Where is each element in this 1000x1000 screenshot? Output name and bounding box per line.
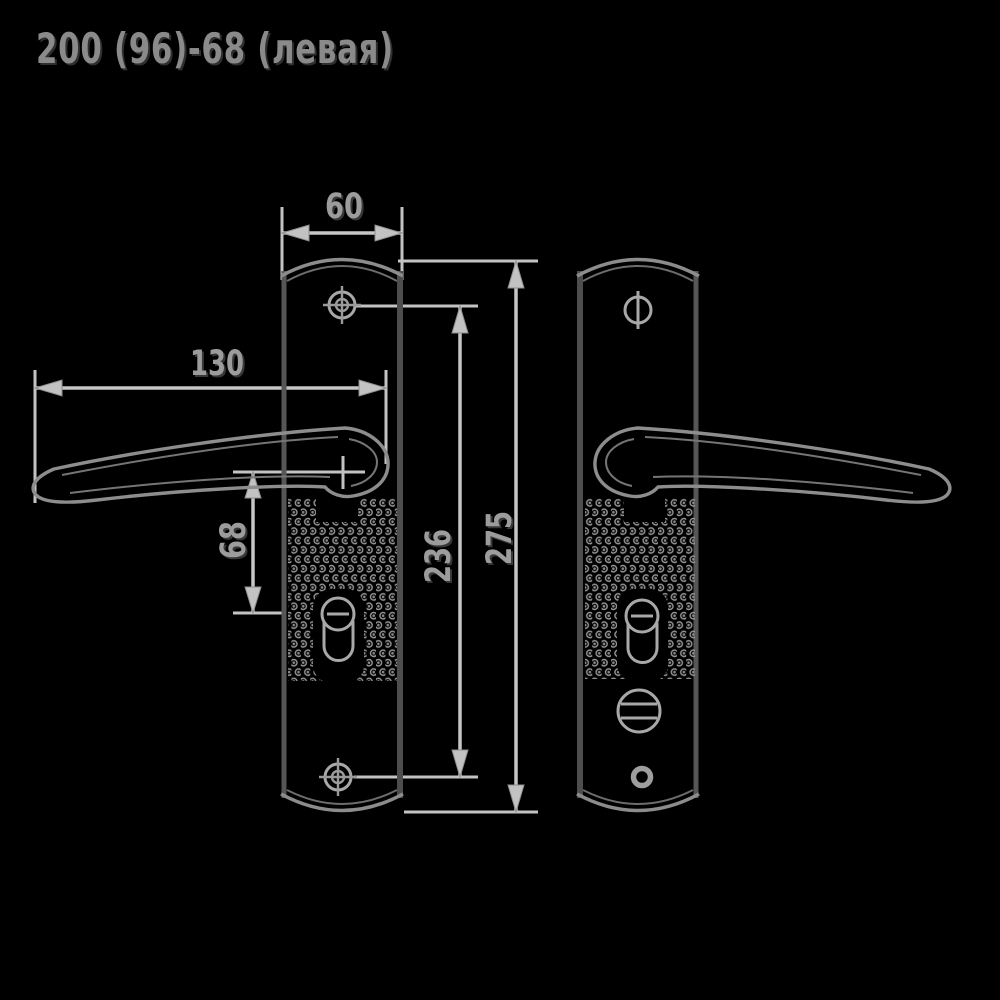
top-screw-hole-icon xyxy=(323,286,361,324)
dim-60-label: 60 xyxy=(325,187,363,227)
dim-275-label: 275 xyxy=(480,511,520,565)
right-view xyxy=(577,260,950,811)
dim-236-label: 236 xyxy=(419,529,459,583)
arrowhead-left-icon xyxy=(35,380,62,396)
drawing-canvas: 200 (96)-68 (левая) 200 (96)-68 (левая) … xyxy=(0,0,1000,1000)
handle-neck-notch xyxy=(624,494,665,522)
left-plate xyxy=(281,260,403,811)
dim-68-label: 68 xyxy=(214,521,254,559)
right-plate xyxy=(577,260,699,811)
top-screw-hole-icon xyxy=(625,291,651,329)
drawing-title: 200 (96)-68 (левая) xyxy=(36,24,394,73)
plate-top-arch xyxy=(281,260,403,277)
arrowhead-up-icon xyxy=(508,261,524,288)
turn-knob-ring xyxy=(618,690,660,732)
handle-boss-inner xyxy=(349,439,377,486)
dim-130-label: 130 xyxy=(190,344,244,384)
arrowhead-up-icon xyxy=(452,306,468,333)
plate-top-arch xyxy=(577,260,699,277)
left-handle xyxy=(33,428,388,502)
handle-boss-inner xyxy=(606,439,634,486)
arrowhead-up-icon xyxy=(245,472,261,498)
arrowhead-down-icon xyxy=(452,750,468,777)
right-handle xyxy=(595,428,950,502)
plate-bottom-arch-inner xyxy=(287,790,397,804)
bottom-screw-hole-icon xyxy=(319,758,357,796)
door-handle-technical-drawing: 200 (96)-68 (левая) 200 (96)-68 (левая) … xyxy=(0,0,1000,1000)
plate-bottom-arch-inner xyxy=(583,790,693,804)
arrowhead-left-icon xyxy=(282,225,309,241)
arrowhead-right-icon xyxy=(359,380,386,396)
keyhole-clear-zone xyxy=(313,589,364,683)
arrowhead-down-icon xyxy=(245,587,261,613)
bottom-hole-icon xyxy=(634,769,651,786)
arrowhead-down-icon xyxy=(508,785,524,812)
turn-knob-icon xyxy=(618,690,660,732)
keyhole-clear-zone xyxy=(617,589,668,682)
arrowhead-right-icon xyxy=(375,225,402,241)
plate-top-arch-inner xyxy=(287,266,397,281)
plate-top-arch-inner xyxy=(583,266,693,281)
handle-neck-notch xyxy=(316,494,358,522)
left-view: 60 60 130 130 236 236 xyxy=(33,187,538,812)
